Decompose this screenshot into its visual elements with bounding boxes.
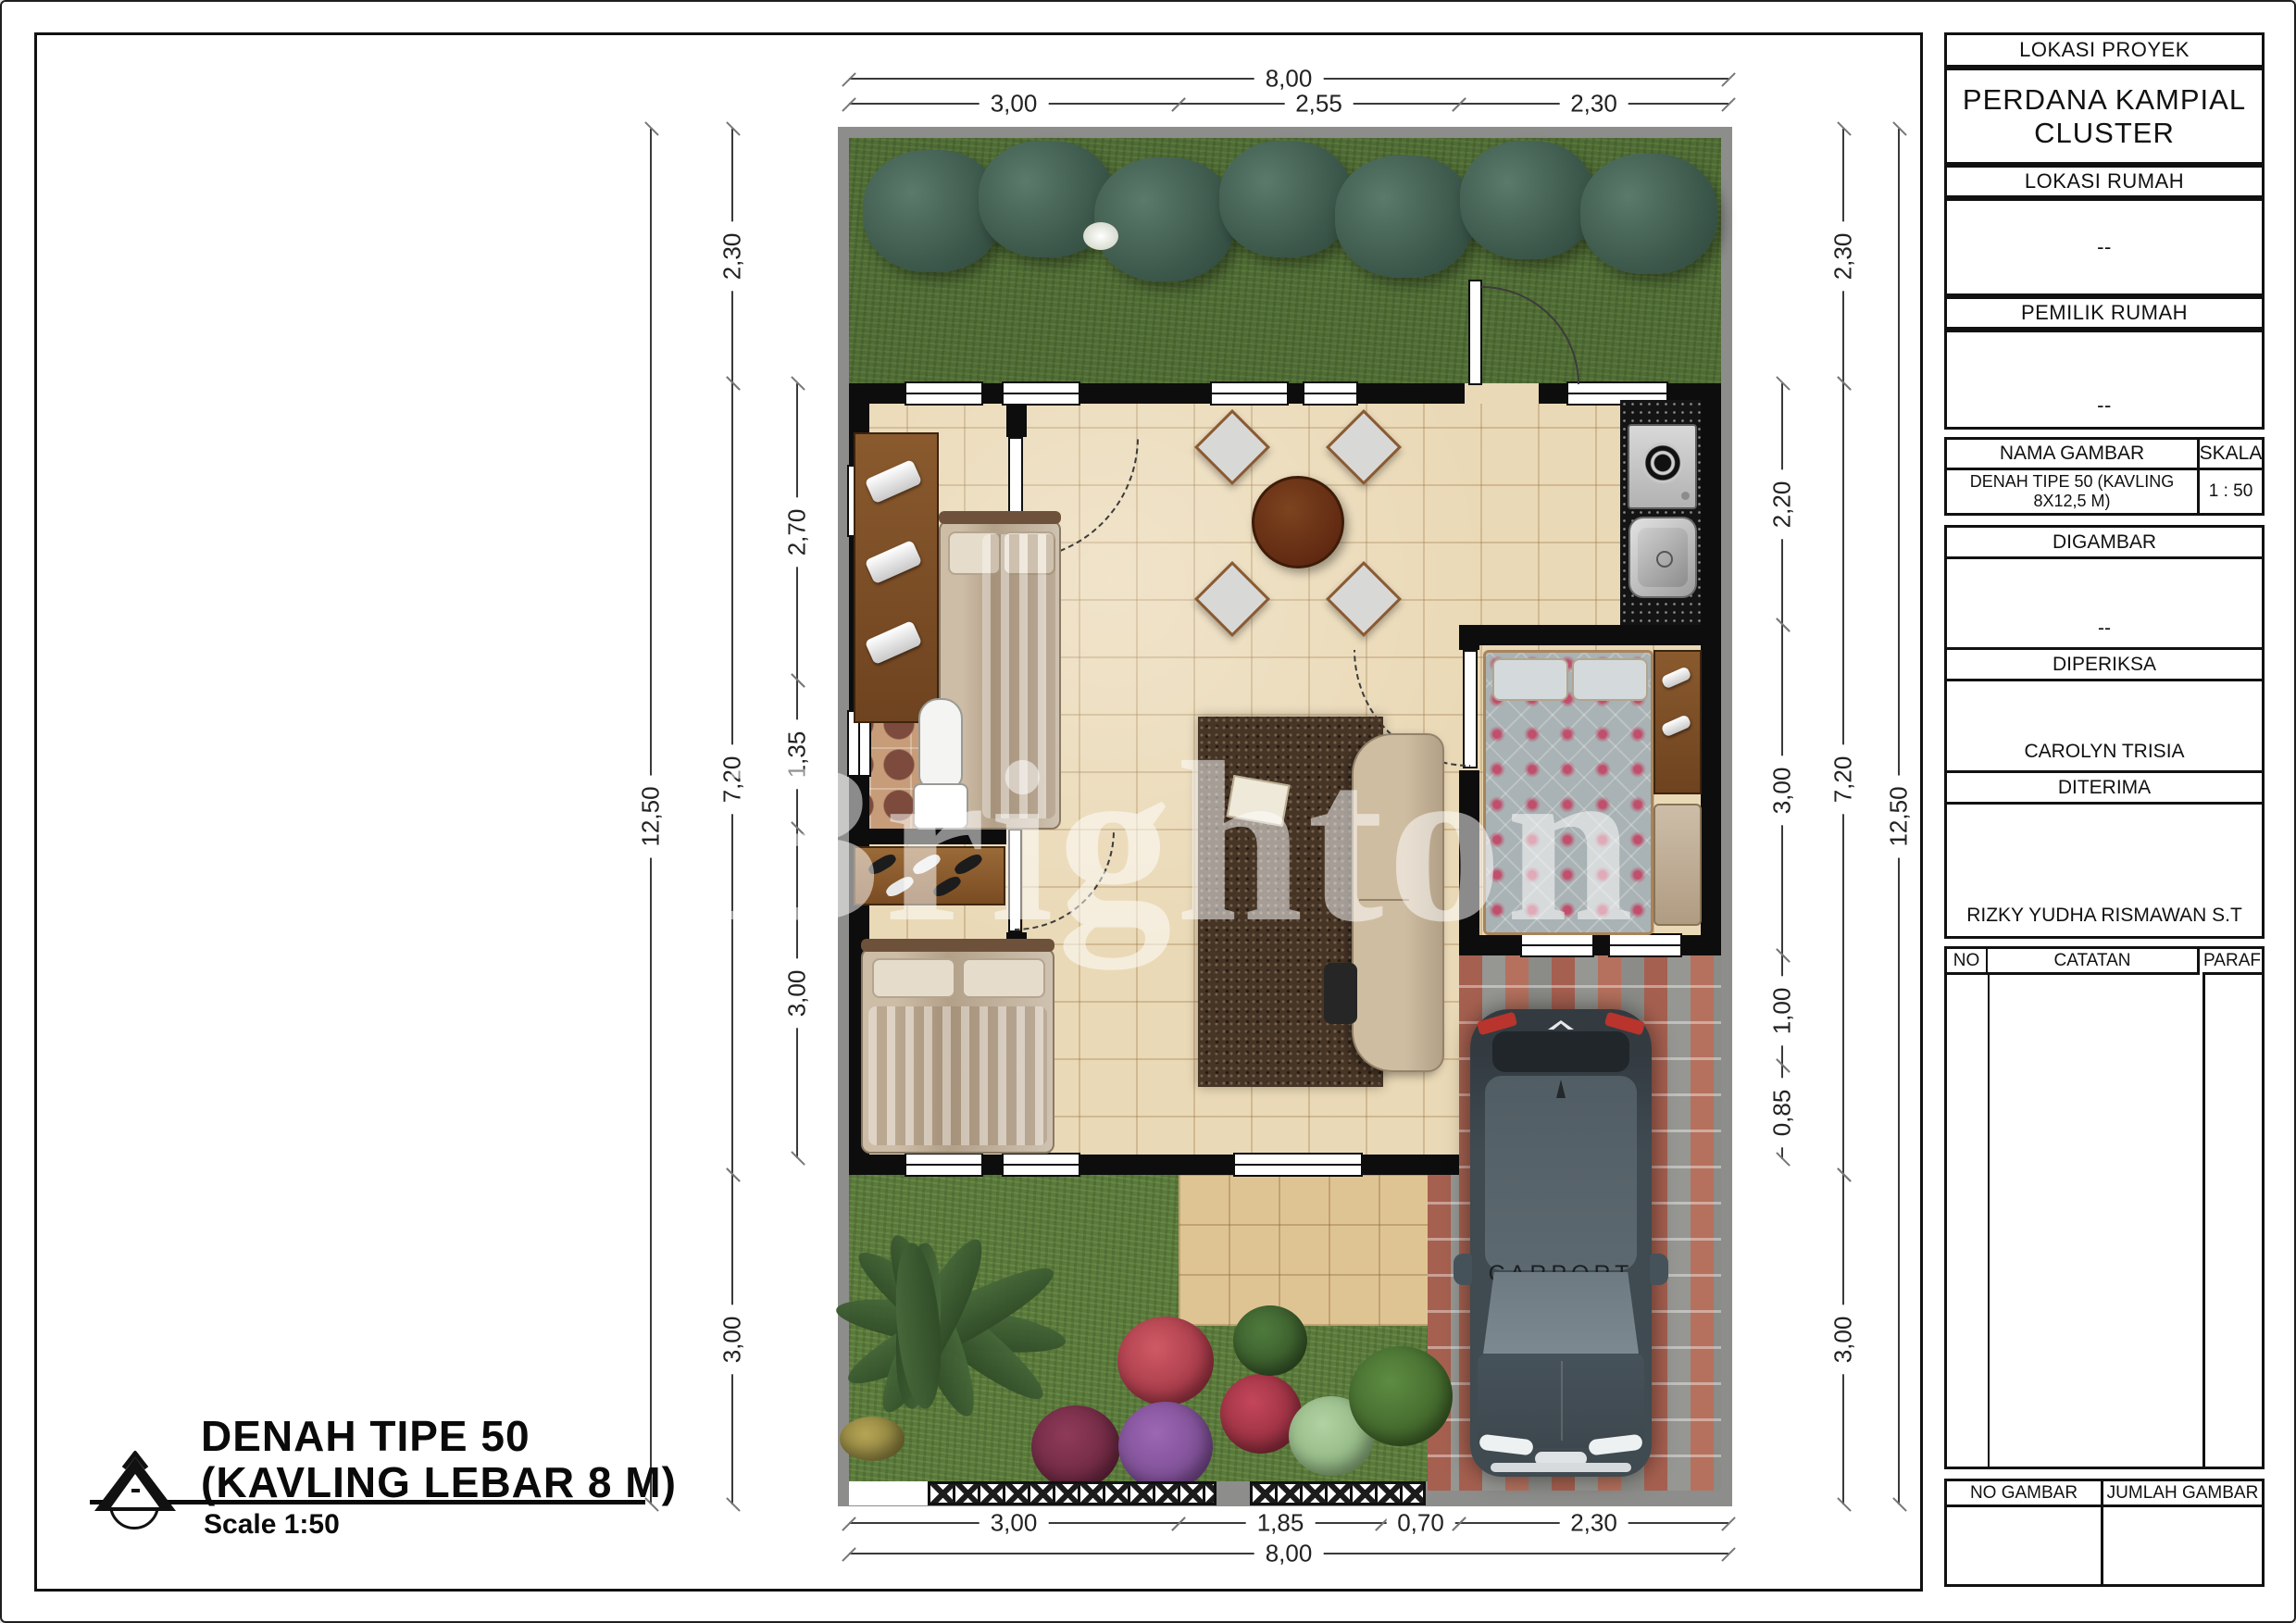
wall-interior: [1459, 770, 1479, 955]
green-plant: [1233, 1305, 1307, 1376]
diterima-value: RIZKY YUDHA RISMAWAN S.T: [1966, 905, 2242, 927]
skala-value-box: 1 : 50: [2200, 470, 2262, 513]
dim-bottom-total: 8,00: [849, 1553, 1728, 1554]
catatan-paraf-header: PARAF: [2202, 949, 2262, 975]
no-gambar-header: NO GAMBAR: [1947, 1481, 2103, 1507]
dim-right-total: 12,50: [1898, 129, 1900, 1504]
diterima-value-box: RIZKY YUDHA RISMAWAN S.T: [1947, 805, 2262, 936]
diperiksa-header: DIPERIKSA: [1947, 650, 2262, 681]
lokasi-proyek-label: LOKASI PROYEK: [2019, 38, 2190, 62]
carport-paving-edge: [1428, 1175, 1459, 1491]
pemilik-rumah-value: --: [2097, 393, 2112, 418]
shrub: [1094, 157, 1235, 281]
nama-gambar-table: NAMA GAMBAR SKALA DENAH TIPE 50 (KAVLING…: [1944, 437, 2265, 516]
skala-label: SKALA: [2200, 443, 2263, 465]
dim-top-seg: 2,55: [1179, 103, 1459, 105]
yellow-plant: [840, 1417, 905, 1461]
wall-bathroom-bottom: [849, 829, 1006, 844]
red-flower-bush: [1117, 1317, 1214, 1405]
diperiksa-label: DIPERIKSA: [2053, 654, 2156, 676]
car-mirror: [1650, 1254, 1668, 1285]
window: [1608, 933, 1682, 957]
purple-flower-bush: [1118, 1402, 1213, 1491]
nama-gambar-value: DENAH TIPE 50 (KAVLING 8X12,5 M): [1947, 472, 2197, 511]
window: [1002, 381, 1080, 406]
window: [905, 1153, 983, 1177]
wall-kitchen-bottom: [1459, 625, 1721, 645]
entry-threshold: [1465, 383, 1539, 404]
green-plant: [1349, 1346, 1453, 1446]
dim-right-outer: 2,30: [1842, 129, 1844, 383]
digambar-value: --: [2098, 618, 2111, 640]
car-hood: [1478, 1354, 1644, 1448]
jumlah-gambar-label: JUMLAH GAMBAR: [2107, 1483, 2259, 1504]
car-rear-window: [1492, 1031, 1629, 1072]
nama-gambar-label: NAMA GAMBAR: [2000, 443, 2144, 465]
dim-top-seg: 3,00: [849, 103, 1179, 105]
skala-header: SKALA: [2200, 440, 2262, 470]
dim-left-inner: 3,00: [796, 829, 798, 1158]
lokasi-rumah-label: LOKASI RUMAH: [2025, 169, 2184, 194]
dim-bottom-seg: 2,30: [1459, 1522, 1728, 1524]
dim-left-inner: 1,35: [796, 680, 798, 829]
white-flower: [1083, 222, 1118, 250]
dim-right-inner: 2,20: [1781, 383, 1783, 625]
diterima-label: DITERIMA: [2058, 777, 2151, 799]
entry-door-leaf: [1468, 280, 1482, 385]
footer-table: NO GAMBAR JUMLAH GAMBAR: [1944, 1479, 2265, 1587]
diperiksa-value-box: CAROLYN TRISIA: [1947, 681, 2262, 773]
stove: [1628, 424, 1697, 509]
shoe-rack: [854, 846, 1005, 905]
maroon-flower-bush: [1031, 1405, 1120, 1489]
catatan-paraf-label: PARAF: [2203, 951, 2261, 971]
drawing-title-line1: DENAH TIPE 50: [201, 1411, 530, 1461]
shrub: [1219, 141, 1353, 257]
dim-right-inner: 1,00: [1781, 955, 1783, 1066]
gate-gap: [849, 1481, 928, 1505]
shrub: [1460, 141, 1595, 259]
toilet-bowl: [918, 698, 963, 789]
compass-icon: [87, 1455, 183, 1537]
shrub: [1335, 156, 1474, 278]
wardrobe: [1653, 650, 1702, 794]
car-mirror: [1454, 1254, 1472, 1285]
diperiksa-value: CAROLYN TRISIA: [2024, 741, 2184, 763]
drawing-sheet: CARPORT Brighton 8,00 3,00 2,55 2,30 3,0…: [0, 0, 2296, 1623]
shrub: [1580, 154, 1717, 274]
lokasi-rumah-value-box: --: [1944, 198, 2265, 296]
catatan-col-divider: [1988, 975, 1990, 1467]
sofa: [1352, 733, 1444, 1072]
digambar-value-box: --: [1947, 559, 2262, 650]
lokasi-proyek-value: PERDANA KAMPIAL CLUSTER: [1947, 83, 2262, 150]
side-table: [1324, 963, 1357, 1024]
pemilik-rumah-label: PEMILIK RUMAH: [2021, 301, 2188, 325]
no-gambar-label: NO GAMBAR: [1970, 1483, 2078, 1504]
terrace: [1179, 1175, 1428, 1326]
car: CARPORT: [1470, 1009, 1652, 1477]
dim-bottom-seg: 1,85: [1179, 1522, 1382, 1524]
dim-left-outer: 7,20: [731, 383, 733, 1175]
digambar-label: DIGAMBAR: [2053, 531, 2156, 554]
drawing-title-scale: Scale 1:50: [204, 1509, 340, 1541]
car-logo: [1548, 1020, 1574, 1030]
dim-left-inner: 2,70: [796, 383, 798, 680]
catatan-col-divider: [2202, 975, 2205, 1467]
signature-block: DIGAMBAR -- DIPERIKSA CAROLYN TRISIA DIT…: [1944, 525, 2265, 939]
skala-value: 1 : 50: [2209, 481, 2253, 502]
window: [905, 381, 983, 406]
pemilik-rumah-header: PEMILIK RUMAH: [1944, 296, 2265, 330]
diterima-header: DITERIMA: [1947, 773, 2262, 805]
front-fence: [928, 1481, 1217, 1505]
dim-bottom-seg: 3,00: [849, 1522, 1179, 1524]
wall-right: [1701, 383, 1721, 955]
dim-top-total: 8,00: [849, 78, 1728, 80]
bed-bedroom2: [861, 948, 1054, 1154]
window: [1303, 381, 1358, 406]
no-gambar-value-box: [1947, 1507, 2103, 1584]
car-bumper: [1491, 1463, 1631, 1472]
dim-right-outer: 7,20: [1842, 383, 1844, 1175]
catatan-no-header: NO: [1947, 949, 1988, 975]
dim-left-outer: 2,30: [731, 129, 733, 383]
lokasi-rumah-value: --: [2097, 235, 2112, 259]
dim-left-outer: 3,00: [731, 1175, 733, 1504]
dim-left-total: 12,50: [650, 129, 652, 1504]
digambar-header: DIGAMBAR: [1947, 528, 2262, 559]
kitchen-sink: [1628, 517, 1697, 598]
front-fence: [1250, 1481, 1426, 1505]
dining-table: [1252, 476, 1344, 568]
catatan-no-label: NO: [1953, 951, 1980, 971]
dim-right-inner: 3,00: [1781, 625, 1783, 955]
wall-interior: [1459, 625, 1479, 650]
dim-right-inner: 0,85: [1781, 1066, 1783, 1159]
car-roof: CARPORT: [1485, 1076, 1637, 1270]
lokasi-proyek-value-box: PERDANA KAMPIAL CLUSTER: [1944, 68, 2265, 165]
lokasi-rumah-header: LOKASI RUMAH: [1944, 165, 2265, 198]
bed-bedroom3: [1483, 650, 1653, 935]
dim-bottom-seg: 0,70: [1382, 1522, 1459, 1524]
pemilik-rumah-value-box: --: [1944, 330, 2265, 430]
window: [1002, 1153, 1080, 1177]
toilet-tank: [913, 783, 968, 830]
nama-gambar-value-box: DENAH TIPE 50 (KAVLING 8X12,5 M): [1947, 470, 2200, 513]
window: [1520, 933, 1594, 957]
dim-right-outer: 3,00: [1842, 1175, 1844, 1504]
window: [1210, 381, 1289, 406]
catatan-header: CATATAN: [1988, 949, 2200, 975]
catatan-label: CATATAN: [2053, 951, 2130, 971]
bedside-bench: [1653, 804, 1702, 926]
wardrobe: [854, 432, 939, 723]
car-windshield: [1483, 1272, 1639, 1354]
nama-gambar-header: NAMA GAMBAR: [1947, 440, 2200, 470]
dim-top-seg: 2,30: [1459, 103, 1728, 105]
lokasi-proyek-header: LOKASI PROYEK: [1944, 32, 2265, 68]
jumlah-gambar-value-box: [2103, 1507, 2262, 1584]
jumlah-gambar-header: JUMLAH GAMBAR: [2103, 1481, 2262, 1507]
window: [1233, 1153, 1363, 1177]
catatan-table: NO CATATAN PARAF: [1944, 946, 2265, 1469]
